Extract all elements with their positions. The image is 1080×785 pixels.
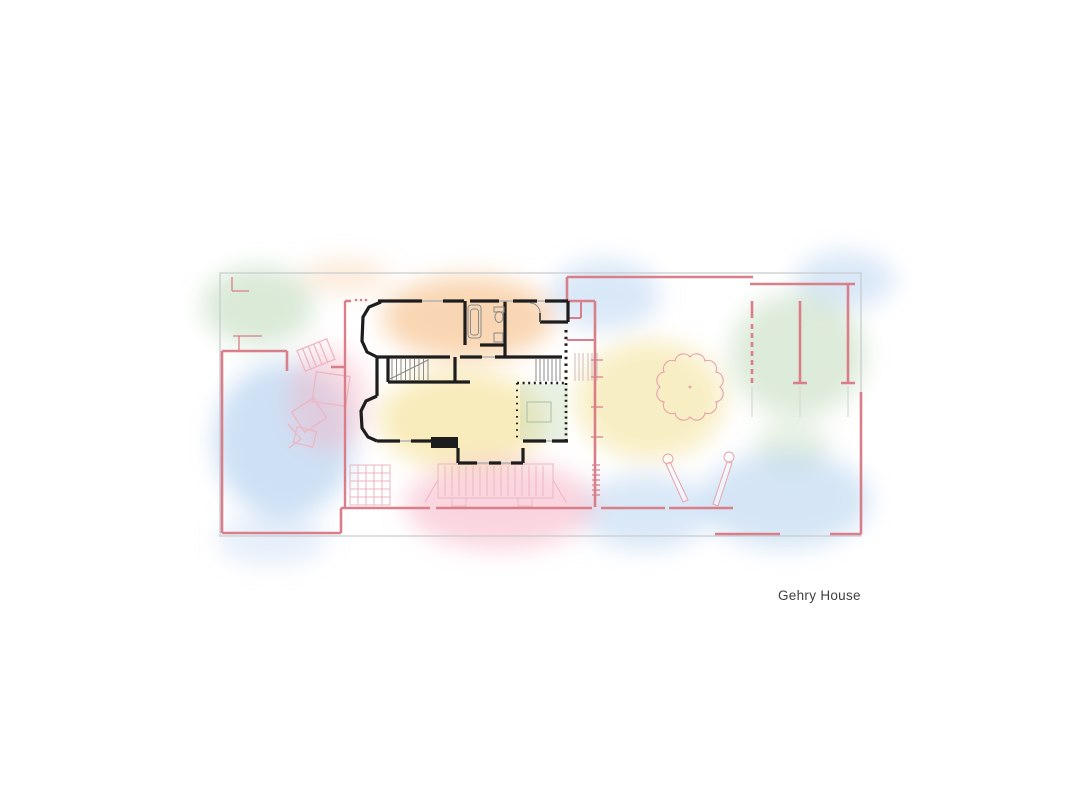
floor-plan-canvas: Gehry House [0,0,1080,785]
watercolor-blob-blue-botleft [217,515,327,565]
side-platform-grid [350,465,390,505]
bay-window-upper [362,302,381,357]
gehry-house-plan: Gehry House [0,0,1080,785]
side-platform [350,465,390,505]
stair-treads-east [536,359,560,381]
pink-wall-dot [355,299,358,302]
watercolor-blob-pink-leftmid [288,348,368,452]
pink-wall-dot [360,299,363,302]
plan-title: Gehry House [778,588,861,603]
wall-step-block [431,437,458,448]
plant-head [724,452,734,462]
watercolor-blob-green-right [730,293,866,417]
watercolor-blob-green-topleft [202,266,314,346]
watercolor-blob-orange-topleft [300,260,390,292]
tree-trunk-dot [689,386,692,389]
pink-wall-dot [365,299,368,302]
